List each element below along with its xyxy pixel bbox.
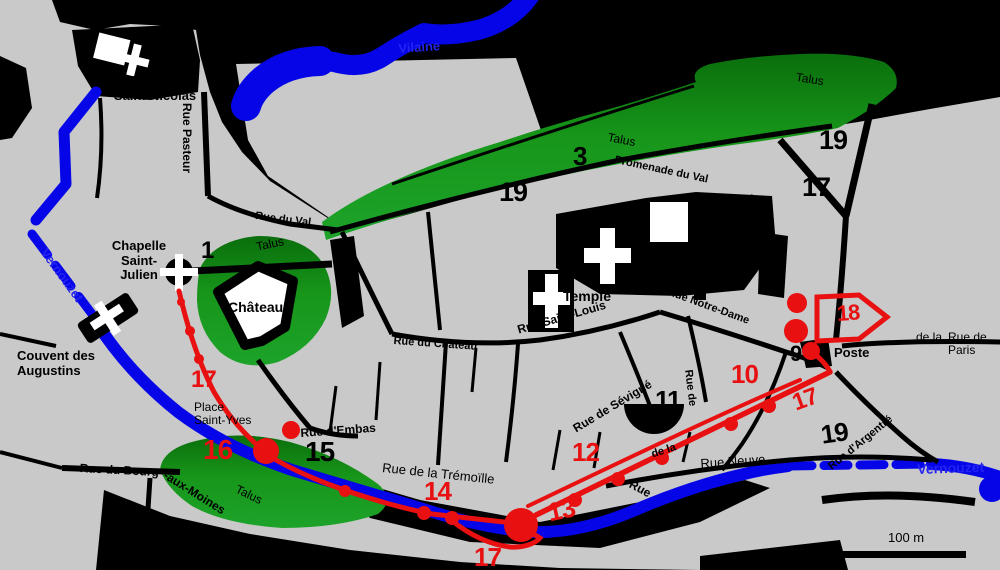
label-line: Saint- bbox=[97, 254, 181, 269]
label-couvent-augustins: Couvent des Augustins bbox=[17, 349, 95, 378]
marchix-block-west bbox=[694, 222, 706, 300]
label-rue-de-paris: Rue de Paris bbox=[948, 331, 987, 358]
label-line: Couvent des bbox=[17, 349, 95, 364]
site-number-12: 12 bbox=[572, 438, 599, 467]
site-number-17-south: 17 bbox=[474, 543, 501, 570]
label-poste: Poste bbox=[834, 346, 869, 361]
site-number-3: 3 bbox=[573, 142, 586, 171]
label-line: Paris bbox=[948, 344, 987, 357]
label-couvent-benedictins: Couvent des Bénédictins bbox=[690, 193, 768, 222]
fortifications-map: Vilaine Vernouzet Vernouzet Talus Talus … bbox=[0, 0, 1000, 570]
site-number-11: 11 bbox=[655, 386, 681, 415]
label-chapelle-saint-nicolas: Chapelle Saint-Nicolas bbox=[100, 74, 210, 103]
label-line: Augustins bbox=[17, 364, 95, 379]
scale-label: 100 m bbox=[888, 531, 924, 546]
site-number-9: 9 bbox=[790, 342, 801, 367]
site-number-14: 14 bbox=[424, 477, 451, 506]
label-vernouzet-lower: Vernouzet bbox=[917, 460, 984, 478]
label-line: Couvent des bbox=[690, 193, 768, 208]
label-vilaine: Vilaine bbox=[398, 39, 441, 56]
label-line: Chapelle bbox=[100, 74, 210, 89]
site-number-10: 10 bbox=[731, 360, 758, 389]
site-number-19-northeast: 19 bbox=[819, 125, 847, 155]
label-line: Julien bbox=[97, 268, 181, 283]
label-place-saint-yves: Place Saint-Yves bbox=[194, 401, 251, 428]
label-place-marchix: Place du Marchix bbox=[712, 243, 774, 270]
site-number-15: 15 bbox=[305, 436, 334, 467]
site-number-13: 13 bbox=[545, 493, 577, 527]
label-line: Saint-Yves bbox=[194, 414, 251, 427]
label-line: Chapelle bbox=[97, 239, 181, 254]
site-number-17-west: 17 bbox=[191, 367, 216, 394]
site-number-19-southeast: 19 bbox=[819, 417, 850, 450]
label-line: Bénédictins bbox=[690, 208, 768, 223]
label-chateau: Château bbox=[228, 300, 283, 316]
site-number-18: 18 bbox=[836, 300, 860, 326]
label-line: Place du bbox=[712, 243, 774, 256]
label-rue-pasteur: Rue Pasteur bbox=[180, 103, 193, 173]
label-line: Marchix bbox=[712, 256, 774, 269]
label-de-la-fragment: de la bbox=[916, 331, 942, 344]
site-number-1: 1 bbox=[201, 238, 213, 265]
scale-bar bbox=[836, 551, 966, 558]
label-line: Saint-Nicolas bbox=[100, 89, 210, 104]
label-line: Rue de bbox=[948, 331, 987, 344]
site-number-19-promenade: 19 bbox=[499, 177, 527, 207]
vernouzet-dashed-east bbox=[788, 464, 932, 466]
label-croix-fragment: Cro bbox=[139, 531, 156, 553]
label-line: Place bbox=[194, 401, 251, 414]
label-chapelle-saint-julien: Chapelle Saint- Julien bbox=[97, 239, 181, 283]
site-number-16: 16 bbox=[203, 434, 232, 465]
benedictins-cloister bbox=[650, 202, 688, 242]
site-number-17-northeast: 17 bbox=[802, 172, 830, 202]
